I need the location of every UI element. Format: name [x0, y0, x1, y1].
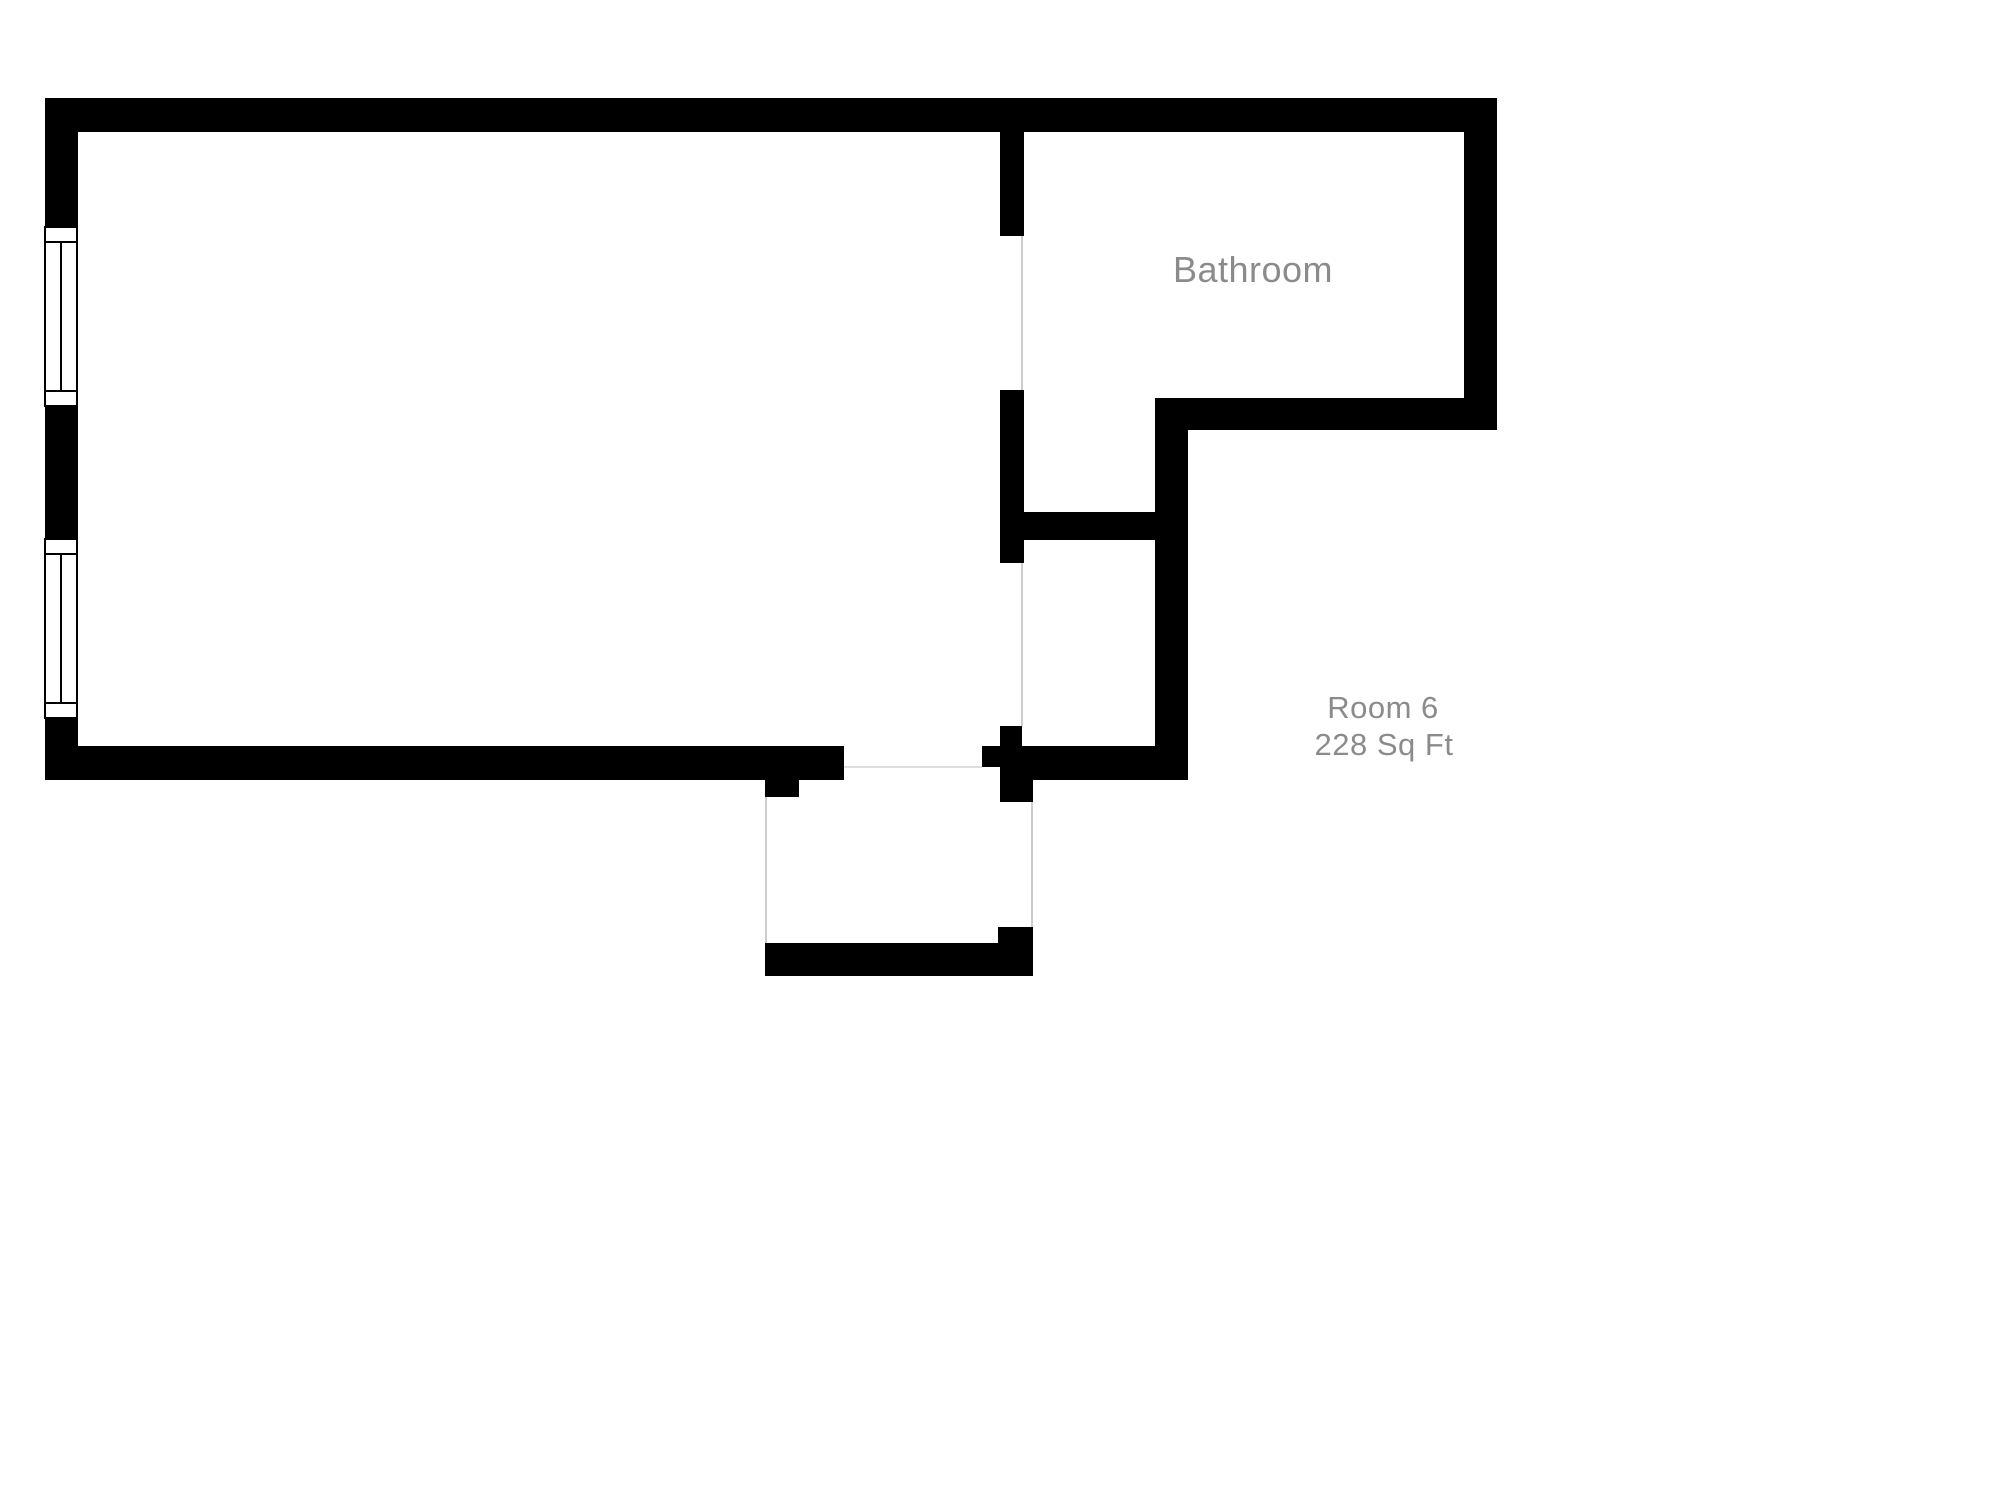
wall-bottom-main [45, 746, 844, 780]
line-vestibule-left [765, 797, 767, 943]
wall-bathroom-bottom [1155, 398, 1464, 430]
line-closet-opening [1021, 563, 1023, 726]
wall-vestibule-bottom [765, 943, 1033, 976]
window-upper [44, 226, 78, 407]
window-upper-sill-bottom [46, 390, 76, 392]
wall-entry-nub [982, 746, 1000, 767]
wall-closet-right [1155, 398, 1188, 780]
wall-entry-jamb-upper [1000, 726, 1022, 746]
room-area-label: 228 Sq Ft [1315, 727, 1454, 763]
wall-top [45, 98, 1497, 132]
room-name-label: Room 6 [1327, 690, 1439, 726]
wall-entry-jamb-lower [1000, 780, 1033, 802]
wall-hall-bottom [1000, 746, 1188, 780]
window-lower [44, 538, 78, 719]
wall-bathroom-partition-lower [1000, 390, 1024, 563]
wall-closet-top [1024, 512, 1155, 540]
floor-plan: Bathroom Room 6 228 Sq Ft [0, 0, 2000, 1500]
wall-right [1464, 98, 1497, 430]
line-entry-threshold [844, 766, 982, 768]
wall-vestibule-right-corner [998, 927, 1033, 943]
wall-vestibule-left-jamb [765, 780, 799, 797]
bathroom-room-label: Bathroom [1173, 249, 1333, 291]
window-lower-mullion [60, 555, 62, 702]
window-upper-mullion [60, 243, 62, 390]
line-bathroom-door-opening [1021, 236, 1023, 390]
line-vestibule-right [1031, 802, 1033, 927]
window-lower-sill-bottom [46, 702, 76, 704]
wall-bathroom-partition-upper [1000, 132, 1024, 236]
